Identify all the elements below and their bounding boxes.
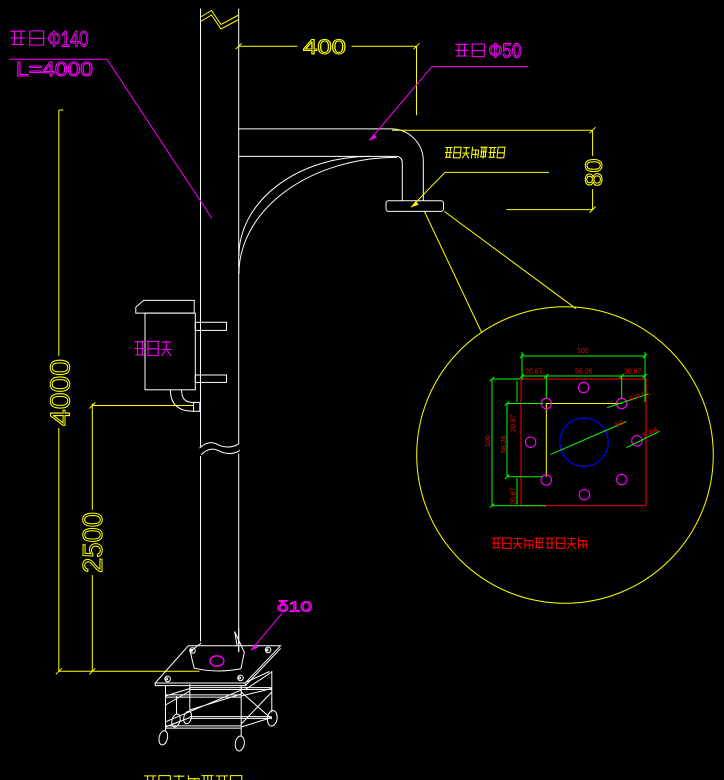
svg-text:58.26: 58.26	[501, 435, 508, 453]
svg-text:Φ140: Φ140	[48, 27, 89, 52]
svg-text:20.87: 20.87	[511, 414, 518, 432]
svg-text:Φ50: Φ50	[489, 40, 522, 62]
svg-text:100: 100	[485, 435, 492, 447]
svg-text:400: 400	[303, 36, 346, 59]
svg-text:100: 100	[577, 348, 589, 355]
svg-text:L=4000: L=4000	[16, 59, 93, 81]
svg-text:4000: 4000	[45, 359, 76, 426]
svg-text:58.26: 58.26	[575, 369, 593, 376]
svg-text:20.87: 20.87	[525, 369, 543, 376]
svg-text:80: 80	[581, 159, 608, 187]
svg-text:20.87: 20.87	[511, 487, 518, 505]
svg-text:20.87: 20.87	[624, 369, 642, 376]
svg-text:2500: 2500	[77, 512, 108, 573]
